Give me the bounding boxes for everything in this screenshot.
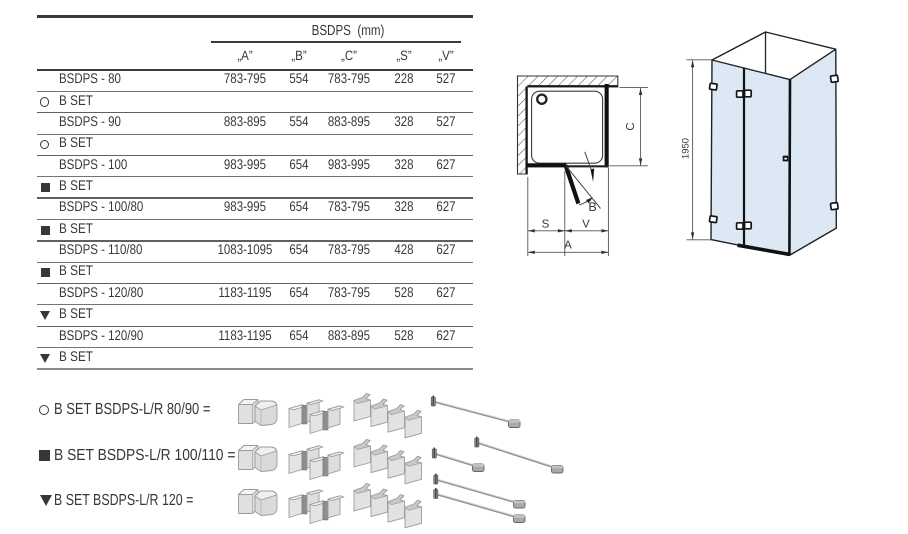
- svg-text:V: V: [582, 219, 590, 231]
- svg-text:S: S: [542, 219, 550, 231]
- svg-text:B: B: [588, 200, 596, 214]
- svg-text:A: A: [564, 239, 572, 251]
- svg-text:C: C: [625, 122, 637, 130]
- svg-text:1950: 1950: [681, 138, 692, 159]
